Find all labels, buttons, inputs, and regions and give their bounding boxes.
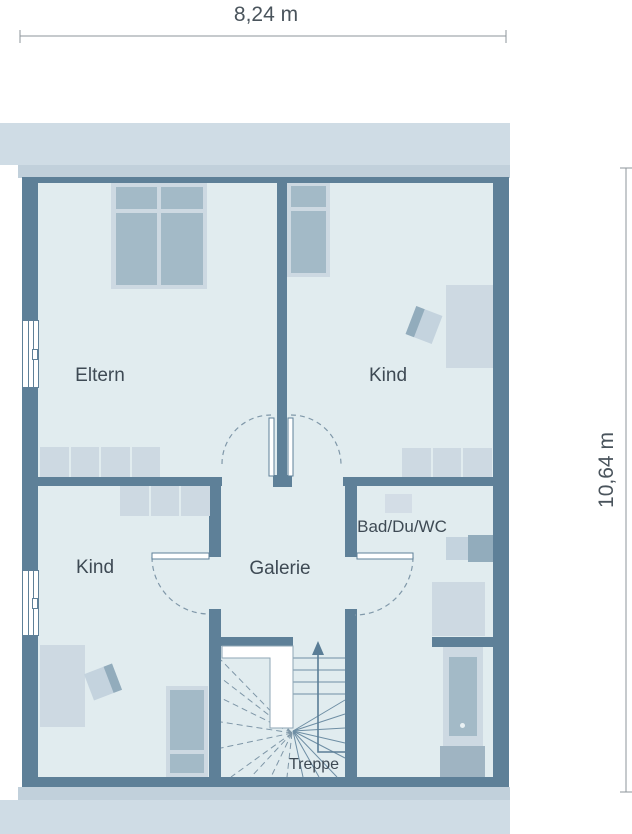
- wardrobe: [402, 448, 492, 477]
- shower: [446, 537, 468, 560]
- room-label-treppe: Treppe: [289, 756, 339, 774]
- window-mullion: [28, 321, 29, 387]
- window: [22, 570, 39, 636]
- bed-pillow: [161, 187, 203, 209]
- bed-mattress: [170, 690, 204, 750]
- roof-band-top: [0, 123, 510, 165]
- dimension-width-label: 8,24 m: [234, 3, 298, 27]
- wall-stair-west: [209, 609, 221, 777]
- window-mullion: [28, 571, 29, 635]
- room-label-bath: Bad/Du/WC: [357, 517, 447, 537]
- wall-left: [22, 177, 38, 787]
- eave-band-bottom: [18, 787, 510, 800]
- window-handle: [32, 349, 38, 360]
- window: [22, 320, 39, 388]
- desk: [40, 645, 85, 727]
- wall-kind-bottom-east: [209, 486, 221, 557]
- window-handle: [32, 598, 38, 609]
- toilet: [432, 582, 485, 636]
- wall-eltern-kind: [277, 183, 287, 475]
- bed-pillow: [116, 187, 157, 209]
- wall-bottom: [22, 777, 509, 787]
- wall-bath-stub: [432, 637, 493, 647]
- bed-pillow: [170, 754, 204, 773]
- wall-bath-north: [343, 477, 493, 486]
- desk: [446, 285, 493, 368]
- room-label-kind-top: Kind: [369, 365, 407, 387]
- wall-eltern-south: [38, 477, 222, 486]
- bed-mattress: [116, 213, 157, 285]
- wall-top: [22, 177, 509, 183]
- wardrobe: [40, 447, 160, 477]
- dimension-height-label: 10,64 m: [595, 432, 619, 508]
- roof-band-bottom: [0, 800, 510, 834]
- wall-stair-north: [221, 637, 293, 646]
- room-label-galerie: Galerie: [249, 558, 310, 580]
- room-label-kind-bottom: Kind: [76, 557, 114, 579]
- floor-plan: 8,24 m 10,64 m Eltern Kind Kind Bad/Du/W…: [0, 0, 632, 834]
- bed-pillow: [291, 186, 326, 207]
- bath-counter: [440, 746, 485, 777]
- wall-stair-east: [345, 609, 357, 777]
- wall-right: [493, 177, 509, 787]
- room-label-eltern: Eltern: [75, 365, 125, 387]
- sink: [385, 494, 412, 513]
- wall-center-post: [273, 475, 292, 487]
- washing-machine: [468, 535, 493, 562]
- bed-mattress: [291, 211, 326, 273]
- wall-bath-west: [345, 486, 357, 557]
- wardrobe: [120, 486, 210, 516]
- bed-mattress: [161, 213, 203, 285]
- bathtub-drain: [460, 723, 465, 728]
